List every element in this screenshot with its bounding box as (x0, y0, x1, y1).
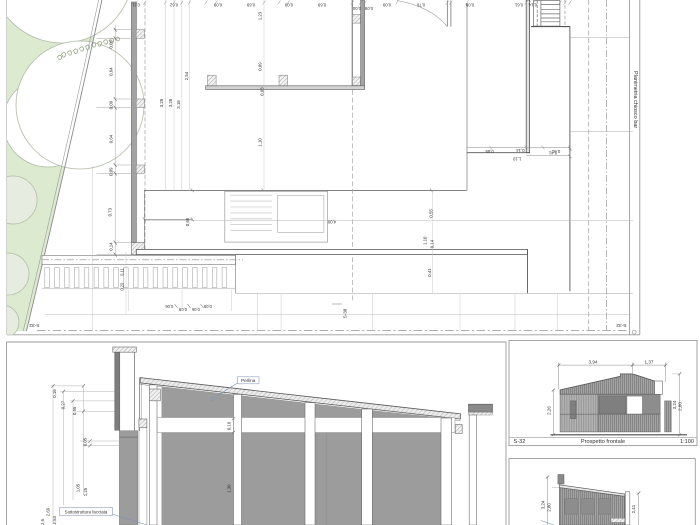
svg-text:0,14: 0,14 (430, 239, 435, 248)
svg-text:3,94: 3,94 (589, 360, 598, 365)
svg-text:3,18: 3,18 (176, 100, 181, 109)
svg-text:2,53: 2,53 (52, 516, 57, 525)
svg-text:0,64: 0,64 (109, 67, 114, 76)
svg-text:2,80: 2,80 (546, 503, 551, 512)
svg-text:1,10: 1,10 (422, 236, 427, 245)
svg-text:0,69: 0,69 (185, 217, 190, 226)
svg-text:0,09: 0,09 (364, 6, 373, 11)
svg-text:4,00: 4,00 (327, 220, 336, 225)
svg-text:2,80: 2,80 (678, 402, 683, 411)
svg-text:2,54: 2,54 (184, 71, 189, 80)
svg-text:0,05: 0,05 (82, 437, 87, 446)
svg-text:0,09: 0,09 (109, 100, 114, 109)
svg-text:0,09: 0,09 (203, 304, 212, 309)
svg-text:0,09: 0,09 (178, 307, 187, 312)
svg-text:3,28: 3,28 (168, 98, 173, 107)
svg-text:Perlina: Perlina (241, 378, 256, 383)
svg-text:0,09: 0,09 (213, 3, 222, 8)
svg-text:S-32: S-32 (29, 322, 40, 328)
svg-text:0,03: 0,03 (260, 87, 265, 96)
svg-text:1,23: 1,23 (258, 11, 263, 20)
svg-text:0,55: 0,55 (72, 406, 77, 415)
svg-text:0,61: 0,61 (514, 3, 523, 8)
svg-text:0,41: 0,41 (551, 149, 560, 154)
svg-text:Sottostruttura facciata: Sottostruttura facciata (65, 510, 108, 515)
svg-text:0,09: 0,09 (284, 3, 293, 8)
svg-text:3,28: 3,28 (159, 98, 164, 107)
svg-text:0,69: 0,69 (246, 3, 255, 8)
svg-text:0,11: 0,11 (119, 267, 124, 275)
svg-text:0,06: 0,06 (165, 304, 174, 309)
svg-text:0,27: 0,27 (61, 400, 66, 409)
svg-text:0,06: 0,06 (191, 307, 200, 312)
svg-text:0,16: 0,16 (227, 421, 232, 430)
svg-text:0,69: 0,69 (317, 3, 326, 8)
svg-text:1,10: 1,10 (258, 138, 263, 147)
svg-text:2,6: 2,6 (40, 518, 45, 525)
svg-text:0,73: 0,73 (108, 207, 113, 216)
svg-text:2,69: 2,69 (45, 507, 50, 516)
svg-text:1,10: 1,10 (512, 157, 521, 162)
svg-text:0,00: 0,00 (352, 6, 361, 11)
svg-text:0,55: 0,55 (485, 149, 494, 154)
svg-text:Planimetria chiosco bar: Planimetria chiosco bar (632, 71, 638, 128)
svg-text:0,20: 0,20 (119, 282, 124, 291)
svg-text:1,30: 1,30 (227, 484, 232, 493)
svg-text:0,64: 0,64 (109, 134, 114, 143)
svg-text:1:100: 1:100 (680, 439, 694, 445)
svg-text:0,14: 0,14 (516, 148, 525, 153)
svg-text:S-32: S-32 (514, 439, 526, 445)
svg-text:0,41: 0,41 (427, 268, 432, 277)
svg-text:0,76: 0,76 (416, 3, 425, 8)
svg-text:0,09: 0,09 (109, 40, 114, 49)
svg-text:0,16: 0,16 (52, 389, 57, 398)
svg-text:1,37: 1,37 (645, 360, 654, 365)
svg-text:0,09: 0,09 (109, 167, 114, 176)
svg-text:0,55: 0,55 (428, 209, 433, 218)
svg-text:0,14: 0,14 (528, 3, 537, 8)
svg-text:S-38: S-38 (343, 308, 348, 318)
svg-text:S-32: S-32 (616, 322, 627, 328)
svg-text:Prospetto frontale: Prospetto frontale (581, 439, 625, 445)
svg-text:0,09: 0,09 (382, 3, 391, 8)
svg-text:2,41: 2,41 (631, 504, 636, 513)
svg-text:3,24: 3,24 (540, 500, 545, 509)
svg-text:0,09: 0,09 (258, 62, 263, 71)
svg-text:2,26: 2,26 (546, 406, 551, 415)
svg-text:1,25: 1,25 (83, 487, 88, 496)
svg-text:1,05: 1,05 (75, 483, 80, 492)
svg-text:0,14: 0,14 (109, 242, 114, 251)
svg-text:3,24: 3,24 (672, 400, 677, 409)
